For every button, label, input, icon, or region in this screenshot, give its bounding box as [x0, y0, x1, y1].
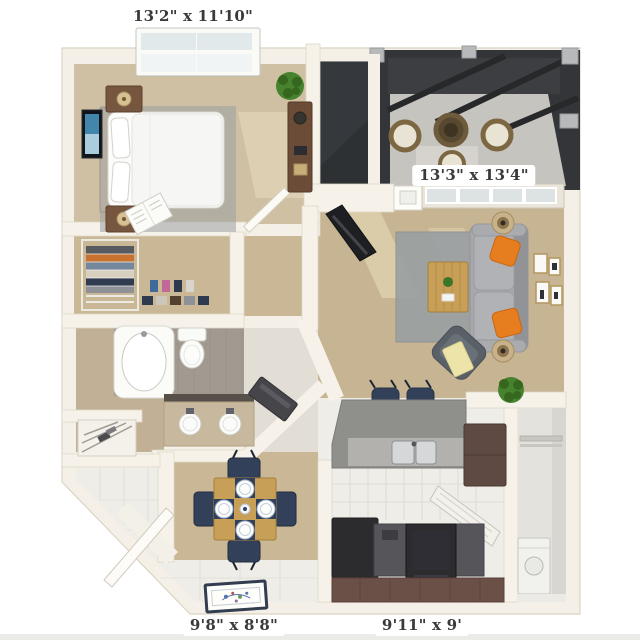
- bed: [108, 112, 224, 208]
- sink-right: [219, 413, 241, 435]
- kitchen-sink: [392, 441, 414, 464]
- plate-4: [236, 521, 254, 539]
- dining-dimensions-label: 9'8" x 8'8": [183, 615, 285, 636]
- range: [406, 524, 456, 586]
- nightstand-top: [106, 86, 142, 112]
- pillow: [111, 117, 131, 158]
- pantry-floor-strip: [518, 594, 566, 602]
- bottom-edge-strip: [0, 634, 640, 640]
- pantry-shelf: [520, 436, 562, 441]
- faucet-left: [186, 408, 194, 414]
- wall-closet-right: [230, 232, 244, 316]
- dining-chair-north: [228, 458, 260, 480]
- window-pane-4: [197, 54, 252, 72]
- doormat: [205, 581, 267, 612]
- refrigerator: [332, 518, 378, 578]
- sofa: [470, 224, 528, 352]
- bed-duvet: [132, 114, 222, 206]
- patio-chair-right: [483, 121, 511, 149]
- living-plant: [498, 377, 524, 403]
- accent-pillow-2: [491, 307, 523, 339]
- dresser-item-2: [294, 164, 307, 175]
- sliding-door-glass: [426, 188, 556, 203]
- wall-kitchen-dining: [318, 460, 332, 602]
- bedroom-plant: [276, 72, 304, 100]
- dining-chair-west: [194, 492, 216, 526]
- living-room-dimensions-label: 13'3" x 13'4": [412, 165, 535, 186]
- counter-item: [382, 530, 398, 540]
- utility-closet: [314, 54, 380, 190]
- hanging-clothes: [86, 246, 134, 293]
- bathtub-basin: [122, 333, 166, 391]
- end-table-top: [492, 212, 514, 234]
- dining-chair-east: [274, 492, 296, 526]
- linen-closet: [78, 420, 136, 456]
- window-pane-3: [141, 54, 196, 72]
- wall-hallway-right: [302, 206, 318, 330]
- patio-chair-left: [391, 122, 419, 150]
- washer-door: [525, 557, 543, 575]
- kitchen-base-cabinets: [332, 578, 504, 602]
- floor-plan-image: 13'2" x 11'10" 13'3" x 13'4" 9'8" x 8'8"…: [0, 0, 640, 640]
- kitchen-cabinet: [464, 424, 506, 486]
- sliding-door: [394, 184, 564, 210]
- vanity-backsplash: [164, 394, 254, 402]
- kitchen-sink-2: [416, 441, 436, 464]
- plate: [236, 480, 254, 498]
- door-jamb-panel: [400, 191, 416, 204]
- pantry-shelf-2: [520, 444, 562, 447]
- end-table-bottom: [492, 340, 514, 362]
- bathtub-faucet: [141, 331, 147, 337]
- wall-art: [82, 110, 102, 158]
- sink-left: [179, 413, 201, 435]
- window-pane-2: [197, 33, 252, 50]
- wall-post: [368, 54, 380, 190]
- faucet-right: [226, 408, 234, 414]
- plate-2: [215, 500, 233, 518]
- kitchen-faucet: [412, 442, 417, 447]
- pantry: [518, 408, 566, 602]
- dresser: [288, 102, 312, 192]
- dresser-tray: [294, 112, 306, 124]
- pillow-2: [111, 161, 131, 202]
- coffee-table: [428, 262, 468, 312]
- floor-plan-drawing: [0, 0, 640, 640]
- bedroom-window: [136, 28, 260, 76]
- table-dish: [442, 294, 454, 301]
- patio-wicker-chair-center: [444, 123, 458, 137]
- table-plant: [443, 277, 453, 287]
- toilet-tank: [178, 328, 206, 341]
- kitchen-dimensions-label: 9'11" x 9': [375, 615, 469, 636]
- dining-table: [214, 478, 276, 540]
- bedroom-dimensions-label: 13'2" x 11'10": [126, 6, 260, 27]
- shoes-row: [142, 296, 209, 305]
- dining-chair-south: [228, 540, 260, 562]
- window-pane: [141, 33, 196, 50]
- dresser-item: [294, 146, 307, 155]
- plate-3: [257, 500, 275, 518]
